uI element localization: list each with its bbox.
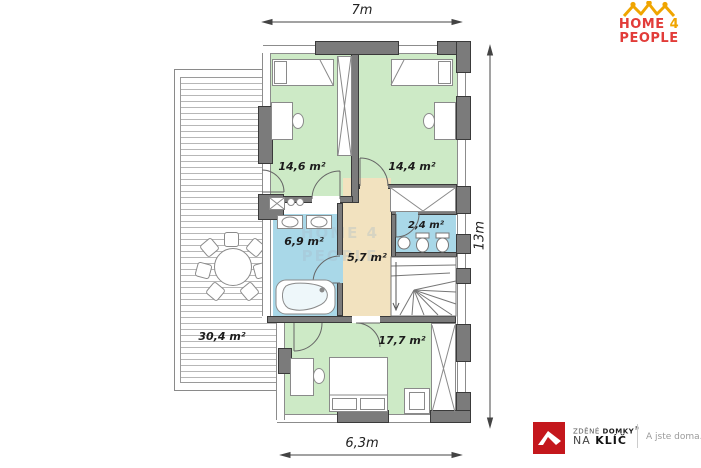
door-gap-bedroom-tr: [360, 184, 388, 189]
wall-top-center: [315, 41, 399, 55]
area-label-hallway: 5,7 m²: [338, 251, 396, 264]
roof-logo-square: [533, 422, 565, 454]
terrace-chair: [224, 232, 239, 247]
bathroom-sink: [277, 215, 303, 229]
pillow-bottom-right: [360, 398, 385, 410]
desk-tl: [271, 102, 293, 140]
home4people-wordmark: HOME 4 PEOPLE: [594, 18, 701, 46]
area-label-bedroom-bottom: 17,7 m²: [362, 334, 442, 347]
armchair-seat: [409, 392, 425, 410]
dimension-label-bottom: 6,3m: [322, 436, 402, 451]
area-label-bedroom-tl: 14,6 m²: [262, 160, 342, 173]
zdene-domky-text: ZDĚNÉ DOMKY® NA KLÍČ: [573, 424, 640, 446]
na-word: NA: [573, 434, 595, 447]
terrace-chair: [205, 281, 226, 302]
dimension-line-top: [263, 20, 461, 25]
basin-circle: [287, 198, 295, 206]
dimension-line-right: [488, 46, 493, 427]
crown-of-people-icon: [621, 1, 677, 18]
wall-right-seg5: [456, 324, 471, 362]
door-gap-bedroom-bottom: [352, 316, 380, 323]
area-label-bathroom: 6,9 m²: [272, 235, 336, 248]
terrace-area-label: 30,4 m²: [182, 330, 262, 343]
wall-wc-bottom: [391, 252, 457, 257]
door-gap-bedroom-tl: [312, 196, 340, 203]
pillow-bottom-left: [332, 398, 357, 410]
area-label-wc: 2,4 m²: [398, 220, 454, 231]
wall-right-seg1: [456, 96, 471, 140]
four-word: 4: [670, 17, 680, 32]
pillow-tl: [274, 61, 287, 84]
dimension-line-bottom: [281, 453, 461, 458]
people-word: PEOPLE: [619, 31, 678, 46]
washer-box: [269, 197, 285, 210]
wall-right-corner-top: [456, 41, 471, 73]
klic-word: KLÍČ: [595, 434, 627, 447]
logo-divider: [637, 424, 638, 448]
desk-chair-tr: [423, 113, 435, 129]
basin-circle: [296, 198, 304, 206]
logo-tagline: A jste doma.: [646, 432, 701, 442]
zdene-domky-line2: NA KLÍČ: [573, 436, 640, 446]
wall-right-seg3: [456, 234, 471, 254]
floor-plan-page: 30,4 m² HOME 4 PEOPLE: [0, 0, 701, 468]
zdene-domky-logo: ZDĚNÉ DOMKY® NA KLÍČ A jste doma.: [533, 420, 701, 460]
desk-chair-tl: [292, 113, 304, 129]
desk-tr: [434, 102, 456, 140]
dimension-label-top: 7m: [322, 3, 402, 18]
window-band-left-upper: [262, 53, 271, 316]
desk-chair-bottom: [313, 368, 325, 384]
roof-icon: [533, 422, 565, 454]
wall-bottom-right: [430, 410, 471, 423]
terrace-chair: [239, 281, 260, 302]
terrace-table: [214, 248, 252, 286]
wardrobe-tr: [390, 187, 456, 212]
closet-middle: [337, 56, 352, 156]
desk-bottom: [290, 358, 314, 396]
wall-between-bedrooms: [351, 53, 359, 203]
pillow-tr: [438, 61, 451, 84]
room-stairwell: [391, 257, 456, 316]
dimension-label-right: 13m: [473, 208, 488, 264]
terrace-chair: [194, 261, 212, 279]
home4people-logo: HOME 4 PEOPLE: [594, 1, 701, 46]
area-label-bedroom-tr: 14,4 m²: [372, 160, 452, 173]
wall-right-seg2: [456, 186, 471, 214]
bathroom-sink: [306, 215, 332, 229]
wall-right-seg4: [456, 268, 471, 284]
home-word: HOME: [619, 17, 665, 32]
